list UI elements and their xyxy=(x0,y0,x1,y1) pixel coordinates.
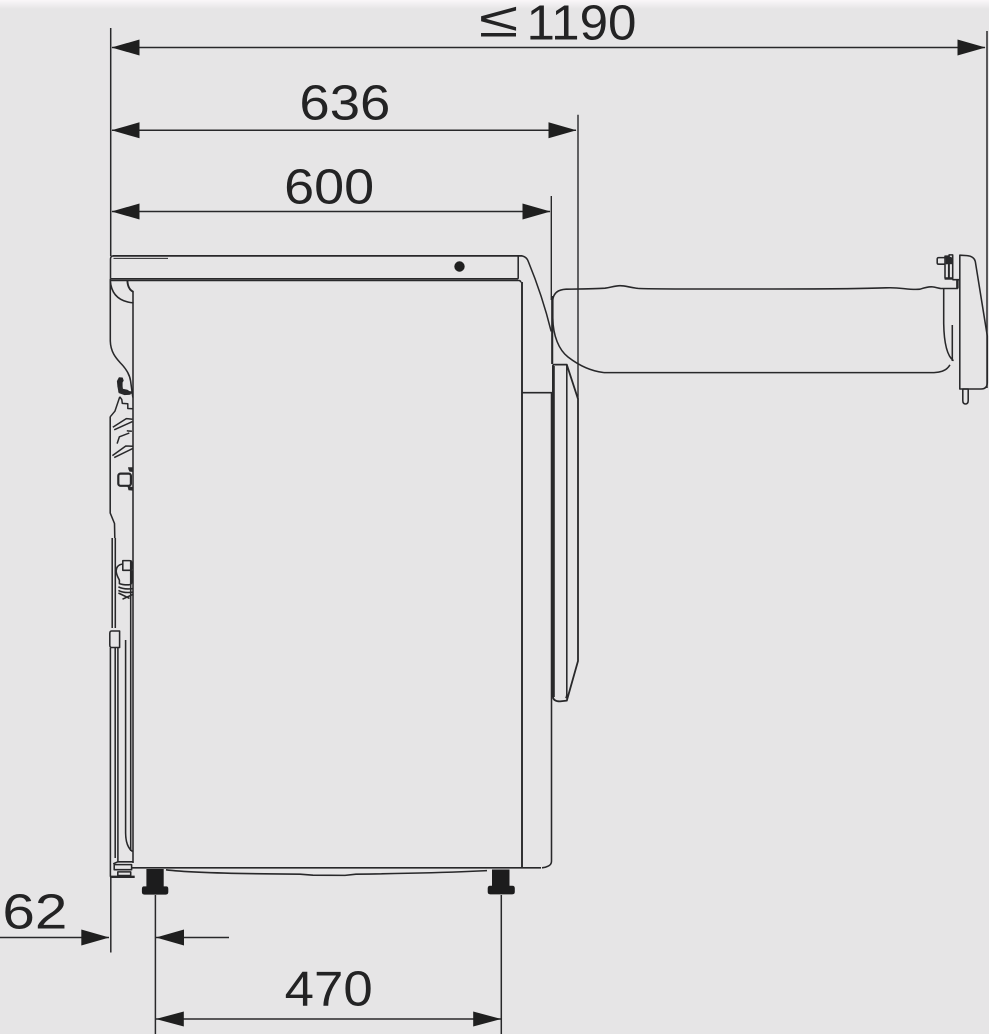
svg-text:636: 636 xyxy=(299,76,390,131)
svg-text:≤: ≤ xyxy=(479,0,519,47)
svg-text:600: 600 xyxy=(284,159,374,214)
svg-text:470: 470 xyxy=(285,962,373,1017)
svg-text:62: 62 xyxy=(2,884,67,939)
svg-text:1190: 1190 xyxy=(527,0,637,50)
